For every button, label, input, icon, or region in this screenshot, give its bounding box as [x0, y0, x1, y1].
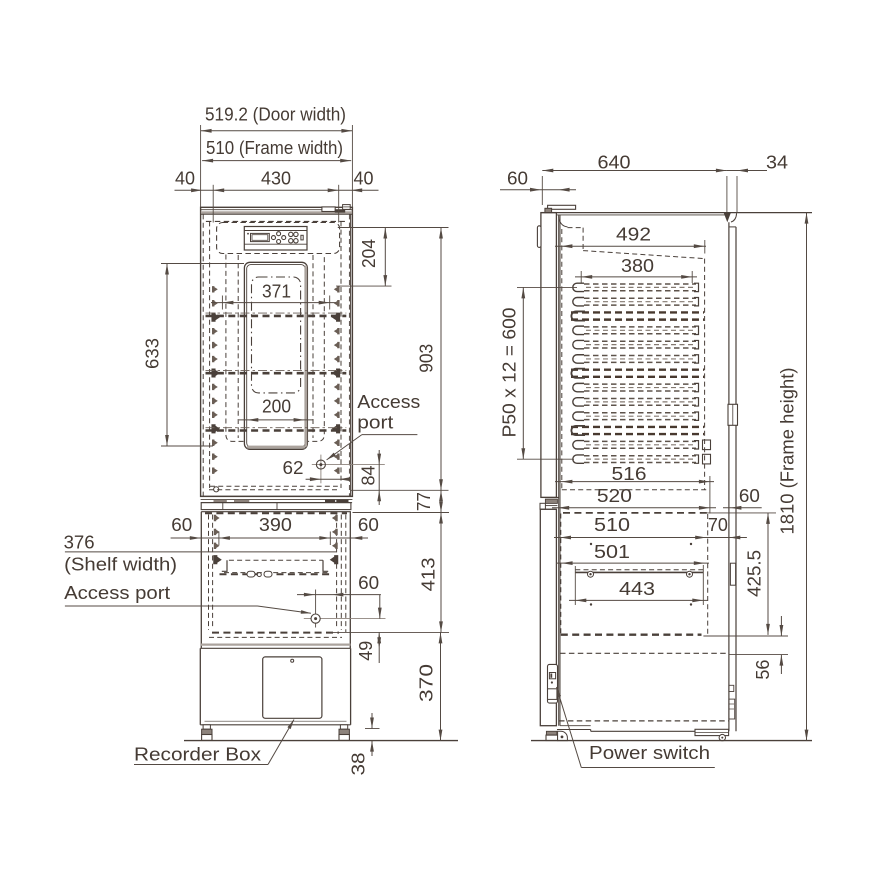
svg-text:430: 430 [261, 168, 291, 188]
svg-text:204: 204 [359, 239, 379, 268]
svg-text:(Shelf width): (Shelf width) [64, 553, 177, 574]
svg-text:501: 501 [594, 542, 630, 562]
svg-text:413: 413 [419, 557, 439, 591]
svg-text:903: 903 [417, 344, 437, 373]
svg-text:371: 371 [262, 282, 291, 302]
svg-text:56: 56 [753, 660, 773, 680]
svg-text:60: 60 [358, 515, 379, 535]
svg-text:40: 40 [175, 168, 195, 188]
svg-text:443: 443 [619, 579, 655, 599]
svg-text:492: 492 [616, 225, 651, 245]
svg-text:Access port: Access port [64, 582, 170, 603]
svg-text:Power switch: Power switch [589, 742, 710, 763]
svg-text:Recorder Box: Recorder Box [134, 744, 262, 765]
svg-text:P50 x 12 = 600: P50 x 12 = 600 [500, 308, 520, 438]
svg-text:380: 380 [621, 256, 654, 276]
svg-text:200: 200 [262, 396, 291, 416]
svg-text:510: 510 [594, 515, 630, 535]
svg-text:70: 70 [708, 515, 728, 535]
svg-text:62: 62 [283, 458, 304, 478]
svg-text:60: 60 [507, 168, 528, 188]
svg-text:Access: Access [357, 391, 420, 412]
svg-text:370: 370 [417, 664, 437, 702]
svg-text:40: 40 [354, 168, 374, 188]
svg-text:390: 390 [259, 515, 292, 535]
svg-text:633: 633 [143, 338, 163, 369]
svg-text:519.2 (Door width): 519.2 (Door width) [205, 104, 346, 125]
svg-text:376: 376 [64, 531, 95, 552]
svg-text:1810 (Frame height): 1810 (Frame height) [776, 368, 797, 535]
svg-text:520: 520 [597, 486, 632, 506]
svg-text:84: 84 [359, 466, 379, 486]
svg-text:510 (Frame width): 510 (Frame width) [206, 137, 343, 158]
svg-text:516: 516 [612, 464, 647, 484]
svg-text:640: 640 [598, 152, 631, 172]
svg-text:38: 38 [349, 753, 369, 776]
svg-text:port: port [357, 412, 393, 433]
svg-text:49: 49 [356, 641, 376, 661]
svg-text:425.5: 425.5 [744, 550, 764, 597]
svg-text:77: 77 [414, 492, 434, 511]
svg-text:34: 34 [766, 152, 788, 172]
svg-text:60: 60 [171, 515, 192, 535]
svg-text:60: 60 [358, 573, 379, 593]
svg-text:60: 60 [739, 486, 760, 506]
